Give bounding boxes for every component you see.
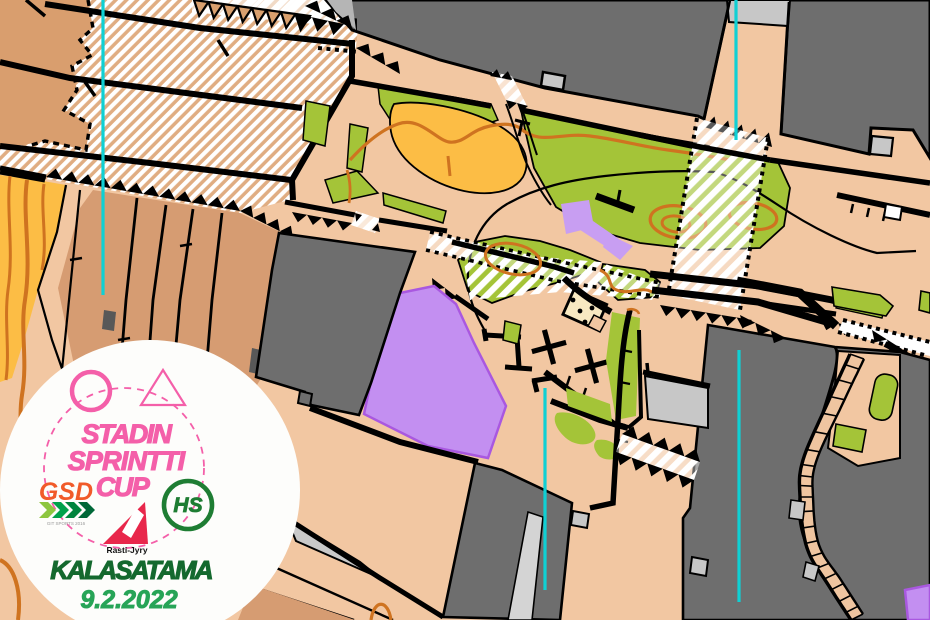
- svg-text:HS: HS: [173, 494, 202, 517]
- svg-text:STADIN: STADIN: [82, 419, 173, 449]
- svg-text:GIT SPORTS 2016: GIT SPORTS 2016: [47, 521, 86, 526]
- svg-text:KALASATAMA: KALASATAMA: [50, 555, 212, 585]
- svg-text:Rasti-Jyry: Rasti-Jyry: [106, 545, 147, 555]
- svg-text:GSD: GSD: [39, 478, 93, 506]
- svg-text:9.2.2022: 9.2.2022: [80, 586, 177, 614]
- svg-text:CUP: CUP: [96, 472, 151, 502]
